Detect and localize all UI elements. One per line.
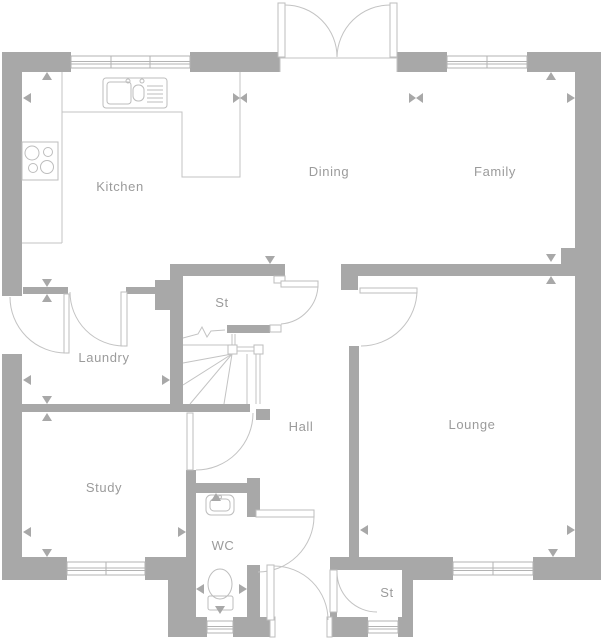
sink-bowl-small <box>133 85 144 101</box>
dim-arrow-right-study <box>178 527 186 537</box>
dim-arrow-right-laundry <box>162 375 170 385</box>
dim-arrow-up-lounge <box>546 276 556 284</box>
dim-arrow-right-family <box>567 93 575 103</box>
study-door <box>187 413 253 470</box>
wall-hall-ne-corner <box>341 276 358 290</box>
window-lounge <box>453 557 533 580</box>
wall-stair-west <box>170 264 183 405</box>
store-upper-door-leaf <box>281 281 318 287</box>
hob-ring-4 <box>41 161 54 174</box>
dim-marker-kitchen-dining-b <box>240 93 247 103</box>
wall-store-upper-north <box>170 264 285 276</box>
stair-winder-treads <box>183 354 232 404</box>
wc-door-leaf <box>256 510 314 517</box>
stair-newel-post-2 <box>254 345 263 354</box>
store-upper-door-swing <box>281 284 318 324</box>
dim-arrow-left-study <box>23 527 31 537</box>
room-label-family: Family <box>474 164 516 179</box>
dim-arrow-up-wc <box>211 493 221 501</box>
hob-ring-2 <box>44 148 53 157</box>
window-study <box>67 557 145 580</box>
stair-balustrade <box>256 354 260 404</box>
dim-arrow-up-family <box>546 72 556 80</box>
wall-store-lower-stub <box>330 612 337 617</box>
kitchen-laundry-door <box>70 292 127 346</box>
floor-plan: Kitchen Dining Family St Laundry Hall Lo… <box>0 0 601 639</box>
wc-door-swing <box>258 517 314 572</box>
french-door-left-leaf <box>278 3 285 57</box>
study-door-leaf <box>187 413 193 470</box>
store-lower-door-leaf <box>330 570 337 612</box>
stair-newel-post-1 <box>228 345 237 354</box>
french-door-right-swing <box>337 5 390 57</box>
dim-arrow-left-kitchen <box>23 93 31 103</box>
front-door-swing <box>274 566 328 620</box>
dim-arrow-left-lounge <box>360 525 368 535</box>
room-label-dining: Dining <box>309 164 349 179</box>
wall-wc-east-lower <box>247 565 260 617</box>
kitchen-fixtures <box>22 72 240 243</box>
side-door-swing <box>10 297 66 353</box>
wc-toilet <box>208 569 233 610</box>
kitchen-sink <box>103 78 167 108</box>
wc-basin <box>206 495 234 515</box>
dim-arrow-left-wc <box>196 584 204 594</box>
study-door-swing <box>196 413 253 470</box>
dim-arrow-down-family <box>546 254 556 262</box>
room-label-wc: WC <box>212 538 235 553</box>
store-lower-door-swing <box>337 572 377 612</box>
french-door-right-leaf <box>390 3 397 57</box>
windows <box>67 52 533 637</box>
window-kitchen <box>71 52 190 72</box>
floor-plan-page: Kitchen Dining Family St Laundry Hall Lo… <box>0 0 601 639</box>
window-family <box>447 52 527 72</box>
side-door <box>10 294 69 353</box>
french-doors <box>278 3 397 72</box>
sink-tap-2 <box>140 79 144 83</box>
wall-laundry-stub-right <box>126 287 158 294</box>
window-store-lower <box>368 617 398 637</box>
hob-ring-3 <box>29 164 38 173</box>
wc-door <box>256 510 314 572</box>
store-upper-jamb-bottom <box>270 325 281 332</box>
sink-bowl-main <box>107 82 131 104</box>
dim-arrow-down-study <box>42 549 52 557</box>
wall-top-mid1 <box>190 52 280 72</box>
kitchen-hob <box>22 142 58 180</box>
wall-left-lower <box>2 354 22 557</box>
dim-arrow-down-laundry <box>42 396 52 404</box>
dim-arrow-right-wc <box>239 584 247 594</box>
wall-study-bottom-right <box>145 557 170 580</box>
wall-lounge-west <box>349 346 359 557</box>
dim-arrow-up-laundry <box>42 294 52 302</box>
dim-arrow-up-kitchen <box>42 72 52 80</box>
dim-marker-dining-family-a <box>409 93 416 103</box>
dim-arrow-right-lounge <box>567 525 575 535</box>
dim-arrow-down-lounge <box>548 549 558 557</box>
wall-laundry-stub-left <box>23 287 68 294</box>
lounge-door-leaf <box>360 288 417 293</box>
room-labels: Kitchen Dining Family St Laundry Hall Lo… <box>78 164 516 600</box>
wall-study-bottom-left <box>2 557 67 580</box>
store-upper-door <box>270 276 318 332</box>
lounge-door <box>360 288 417 346</box>
wall-store-lower-east <box>402 570 413 617</box>
kitchen-laundry-door-leaf <box>121 292 127 346</box>
dim-arrow-down-kitchen <box>42 279 52 287</box>
wall-laundry-south <box>2 404 250 412</box>
store-lower-door <box>330 570 377 612</box>
wall-wc-north <box>196 483 247 493</box>
room-label-st-lower: St <box>380 585 393 600</box>
wall-store-upper-south <box>227 325 270 333</box>
stairs <box>183 327 263 404</box>
front-door-leaf <box>267 565 274 620</box>
dim-arrow-up-study <box>42 413 52 421</box>
toilet-bowl <box>208 569 232 599</box>
kitchen-laundry-door-swing <box>70 292 124 346</box>
wall-stair-pier <box>256 409 270 420</box>
stair-handrail <box>237 347 254 351</box>
french-door-left-swing <box>285 5 337 57</box>
wall-wc-west-inner <box>186 470 196 617</box>
dim-marker-dining-family-b <box>416 93 423 103</box>
hob-ring-1 <box>25 146 39 160</box>
stair-post-link <box>232 334 235 345</box>
lounge-door-swing <box>361 290 417 346</box>
room-label-st-upper: St <box>215 295 228 310</box>
exterior-walls <box>2 52 601 637</box>
front-door <box>267 565 332 637</box>
wall-step-pier <box>561 248 575 264</box>
wall-left-upper <box>2 52 22 296</box>
side-door-leaf <box>64 294 69 353</box>
dim-arrow-left-laundry <box>23 375 31 385</box>
dim-marker-kitchen-dining-a <box>233 93 240 103</box>
stair-break-line <box>183 327 225 338</box>
room-label-hall: Hall <box>289 419 314 434</box>
window-wc <box>207 617 233 637</box>
wall-hall-north <box>341 264 575 276</box>
room-label-lounge: Lounge <box>449 417 496 432</box>
wall-lounge-bottom-thin <box>330 557 413 570</box>
room-label-laundry: Laundry <box>78 350 129 365</box>
dim-arrow-down-dining <box>265 256 275 264</box>
sink-drainer <box>147 86 163 102</box>
wall-top-mid2 <box>397 52 447 72</box>
room-label-study: Study <box>86 480 122 495</box>
wall-right <box>575 52 601 580</box>
room-label-kitchen: Kitchen <box>96 179 144 194</box>
